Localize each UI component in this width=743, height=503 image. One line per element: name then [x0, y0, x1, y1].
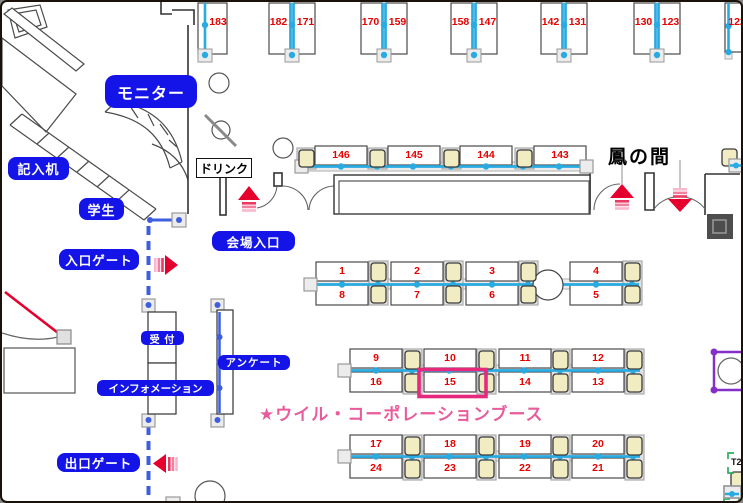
booth-number: 183	[207, 16, 229, 28]
writing-desk-label: 記入机	[8, 157, 69, 180]
booth-number: 16	[350, 376, 402, 388]
entrance-gate-arrow-right	[154, 255, 178, 275]
booth-number: 13	[572, 376, 624, 388]
booth-number: 18	[424, 438, 476, 450]
booth-number: 130	[633, 16, 654, 28]
booth-number: 12	[572, 352, 624, 364]
bottom-left-room	[2, 292, 75, 393]
booth-number: 24	[350, 462, 402, 474]
student-label: 学生	[79, 198, 124, 220]
booth-number: 23	[424, 462, 476, 474]
reception-label: 受 付	[141, 331, 184, 345]
booth-number: 9	[350, 352, 402, 364]
room-name: 鳳の間	[608, 142, 671, 169]
venue-entrance-label: 会場入口	[212, 231, 295, 251]
booth-number: 22	[499, 462, 551, 474]
drink-label: ドリンク	[196, 158, 252, 178]
escalator-area	[2, 5, 188, 220]
booth-number: 123	[660, 16, 681, 28]
booth-number: 14	[499, 376, 551, 388]
booth-number: 145	[388, 149, 440, 161]
t2-marker-label: T2	[731, 457, 742, 467]
booth-number: 159	[387, 16, 408, 28]
booth-number: 4	[570, 265, 622, 277]
booth-number: 10	[424, 352, 476, 364]
service-box	[707, 214, 733, 239]
booth-number: 158	[450, 16, 471, 28]
booth-number: 19	[499, 438, 551, 450]
top-right-chair-link	[729, 159, 743, 172]
booth-number: 143	[534, 149, 586, 161]
booth-number: 20	[572, 438, 624, 450]
booth-number: 147	[477, 16, 498, 28]
pillar-circles	[166, 73, 293, 503]
booth-number-15-highlighted: 15	[424, 376, 476, 388]
booth-number: 5	[570, 289, 622, 301]
exit-gate-arrow-left	[153, 454, 178, 473]
booth-number: 170	[360, 16, 381, 28]
booth-number: 8	[316, 289, 368, 301]
hall-door-arrow-up	[610, 184, 634, 210]
survey-label: アンケート	[218, 355, 290, 370]
booth-number: 142	[540, 16, 561, 28]
top-booths	[198, 3, 743, 62]
purple-column-marker	[711, 349, 743, 394]
exit-gate-label: 出口ゲート	[57, 453, 140, 472]
booth-number: 11	[499, 352, 551, 364]
booth-number: 182	[268, 16, 289, 28]
floor-plan: 183 182 171 170 159 158 147 142 131 130 …	[0, 0, 743, 503]
booth-number: 17	[350, 438, 402, 450]
booth-number: 171	[295, 16, 316, 28]
monitor-label: モニター	[105, 75, 197, 108]
booth-number: 21	[572, 462, 624, 474]
hall-door-arrow-down	[668, 188, 692, 212]
booth-number: 146	[315, 149, 367, 161]
entrance-gate-label: 入口ゲート	[59, 249, 139, 270]
entrance-arrow-up	[238, 186, 260, 212]
booth-number: 6	[466, 289, 518, 301]
booth-number: 144	[460, 149, 512, 161]
booth-number: 2	[391, 265, 443, 277]
highlight-caption: ★ウイル・コーポレーションブース	[259, 400, 544, 425]
booth-number: 1	[316, 265, 368, 277]
booth-number: 122	[728, 16, 743, 28]
booth-number: 3	[466, 265, 518, 277]
booth-number: 131	[567, 16, 588, 28]
information-label: インフォメーション	[97, 380, 214, 396]
booth-number: 7	[391, 289, 443, 301]
